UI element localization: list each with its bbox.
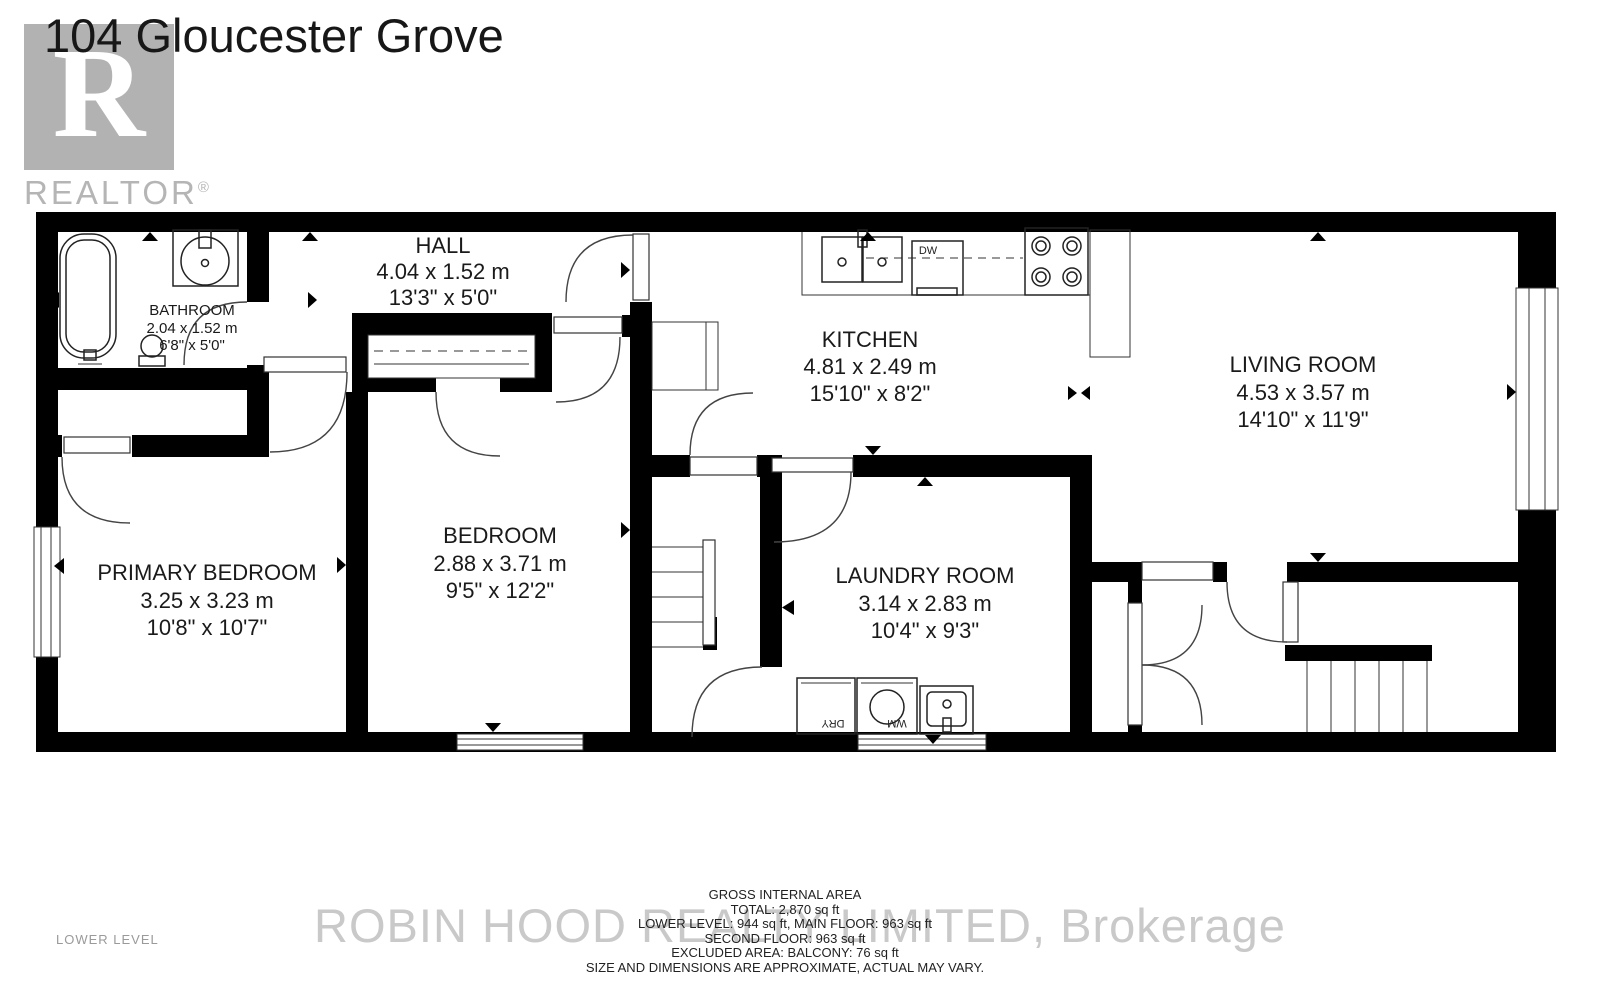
door-swing-primary-closet (62, 457, 130, 523)
bedroom-name: BEDROOM (443, 523, 557, 548)
kitchen-counter-return (1090, 230, 1130, 357)
door-swings (62, 235, 1287, 737)
door-swing-laundry (774, 472, 851, 542)
bathroom-imperial: 6'8" x 5'0" (159, 337, 225, 354)
direction-markers (50, 232, 1516, 744)
living-imperial: 14'10" x 11'9" (1237, 407, 1368, 432)
window-primary-bedroom (34, 527, 60, 657)
kitchen-name: KITCHEN (822, 327, 919, 352)
door-swing-bedroom (556, 337, 620, 402)
living-name: LIVING ROOM (1230, 352, 1377, 377)
primary-metric: 3.25 x 3.23 m (140, 588, 273, 613)
kitchen-metric: 4.81 x 2.49 m (803, 354, 936, 379)
door-leaf-stairs-lower-right (1283, 582, 1298, 642)
dishwasher: DW (912, 241, 963, 295)
bathroom-metric: 2.04 x 1.52 m (147, 320, 238, 337)
stove (1025, 228, 1088, 295)
door-leaf-storage-closet (1142, 562, 1213, 580)
door-swing-closet-lower (1142, 665, 1202, 725)
room-label-kitchen: KITCHEN 4.81 x 2.49 m 15'10" x 8'2" (803, 327, 936, 406)
door-swing-lower-right (1227, 582, 1287, 642)
floorplan-drawing: DW DRY WM (0, 0, 1600, 1000)
door-leaf-primary-closet (64, 437, 130, 453)
window-bedroom-basement (457, 734, 583, 750)
door-swing-stairwell (690, 393, 753, 455)
walls (36, 212, 1556, 752)
door-leaf-primary-bedroom (264, 357, 346, 372)
laundry-imperial: 10'4" x 9'3" (871, 618, 979, 643)
hall-name: HALL (415, 233, 470, 258)
registered-mark: ® (198, 179, 212, 196)
living-metric: 4.53 x 3.57 m (1236, 380, 1369, 405)
bathroom-sink (173, 230, 238, 286)
area-summary-disclaimer: SIZE AND DIMENSIONS ARE APPROXIMATE, ACT… (0, 961, 1570, 976)
bathtub (60, 234, 116, 358)
realtor-logo-wordmark: REALTOR® (24, 174, 212, 212)
laundry-sink (920, 686, 973, 734)
door-leaf-bedroom (554, 317, 622, 333)
dryer-label: DRY (821, 717, 845, 729)
window-laundry-basement (858, 734, 986, 750)
area-summary-heading: GROSS INTERNAL AREA (0, 888, 1570, 903)
washing-machine: WM (857, 678, 917, 734)
window-living-room (1516, 288, 1558, 510)
door-leaf-stairwell (690, 457, 757, 475)
bedroom-metric: 2.88 x 3.71 m (433, 551, 566, 576)
laundry-fixtures: DRY WM (797, 678, 973, 734)
washer-label: WM (887, 717, 907, 729)
door-leaf-hall-kitchen (633, 234, 649, 300)
laundry-metric: 3.14 x 2.83 m (858, 591, 991, 616)
stairs-lower-right (1307, 661, 1427, 732)
primary-imperial: 10'8" x 10'7" (147, 615, 268, 640)
kitchen-sink (822, 230, 902, 282)
area-summary-levels: LOWER LEVEL: 944 sq ft, MAIN FLOOR: 963 … (0, 917, 1570, 932)
primary-name: PRIMARY BEDROOM (97, 560, 316, 585)
stairs-middle (652, 540, 715, 647)
dryer: DRY (797, 678, 855, 734)
room-label-primary: PRIMARY BEDROOM 3.25 x 3.23 m 10'8" x 10… (97, 560, 316, 640)
level-label: LOWER LEVEL (56, 932, 159, 947)
hall-closet (368, 335, 535, 378)
door-leaf-laundry (772, 458, 853, 472)
door-leaves (64, 234, 1298, 725)
area-summary: GROSS INTERNAL AREA TOTAL: 2,870 sq ft L… (0, 888, 1570, 976)
area-summary-second: SECOND FLOOR: 963 sq ft (0, 932, 1570, 947)
floorplan-page: R REALTOR® 104 Gloucester Grove (0, 0, 1600, 1000)
door-swing-closet-upper (1142, 605, 1202, 665)
door-swing-hall-closet (436, 392, 500, 456)
realtor-logo-word: REALTOR (24, 174, 198, 211)
page-title: 104 Gloucester Grove (44, 8, 504, 63)
bathroom-name: BATHROOM (149, 302, 235, 319)
hall-imperial: 13'3" x 5'0" (389, 285, 497, 310)
hall-metric: 4.04 x 1.52 m (376, 259, 509, 284)
bathtub-inner (66, 240, 110, 352)
room-label-bedroom: BEDROOM 2.88 x 3.71 m 9'5" x 12'2" (433, 523, 566, 603)
kitchen-imperial: 15'10" x 8'2" (810, 381, 931, 406)
fridge (652, 322, 718, 390)
door-swing-stair-hall (692, 667, 762, 737)
laundry-name: LAUNDRY ROOM (836, 563, 1015, 588)
closet-door-panel (1128, 603, 1142, 725)
room-label-laundry: LAUNDRY ROOM 3.14 x 2.83 m 10'4" x 9'3" (836, 563, 1015, 643)
area-summary-total: TOTAL: 2,870 sq ft (0, 903, 1570, 918)
room-label-bathroom: BATHROOM 2.04 x 1.52 m 6'8" x 5'0" (147, 302, 238, 354)
dishwasher-label: DW (919, 245, 938, 257)
door-swing-primary-bedroom (270, 372, 347, 452)
bedroom-imperial: 9'5" x 12'2" (446, 578, 554, 603)
room-label-hall: HALL 4.04 x 1.52 m 13'3" x 5'0" (376, 233, 509, 310)
area-summary-excluded: EXCLUDED AREA: BALCONY: 76 sq ft (0, 946, 1570, 961)
stair-rail (703, 540, 715, 645)
room-label-living: LIVING ROOM 4.53 x 3.57 m 14'10" x 11'9" (1230, 352, 1377, 432)
